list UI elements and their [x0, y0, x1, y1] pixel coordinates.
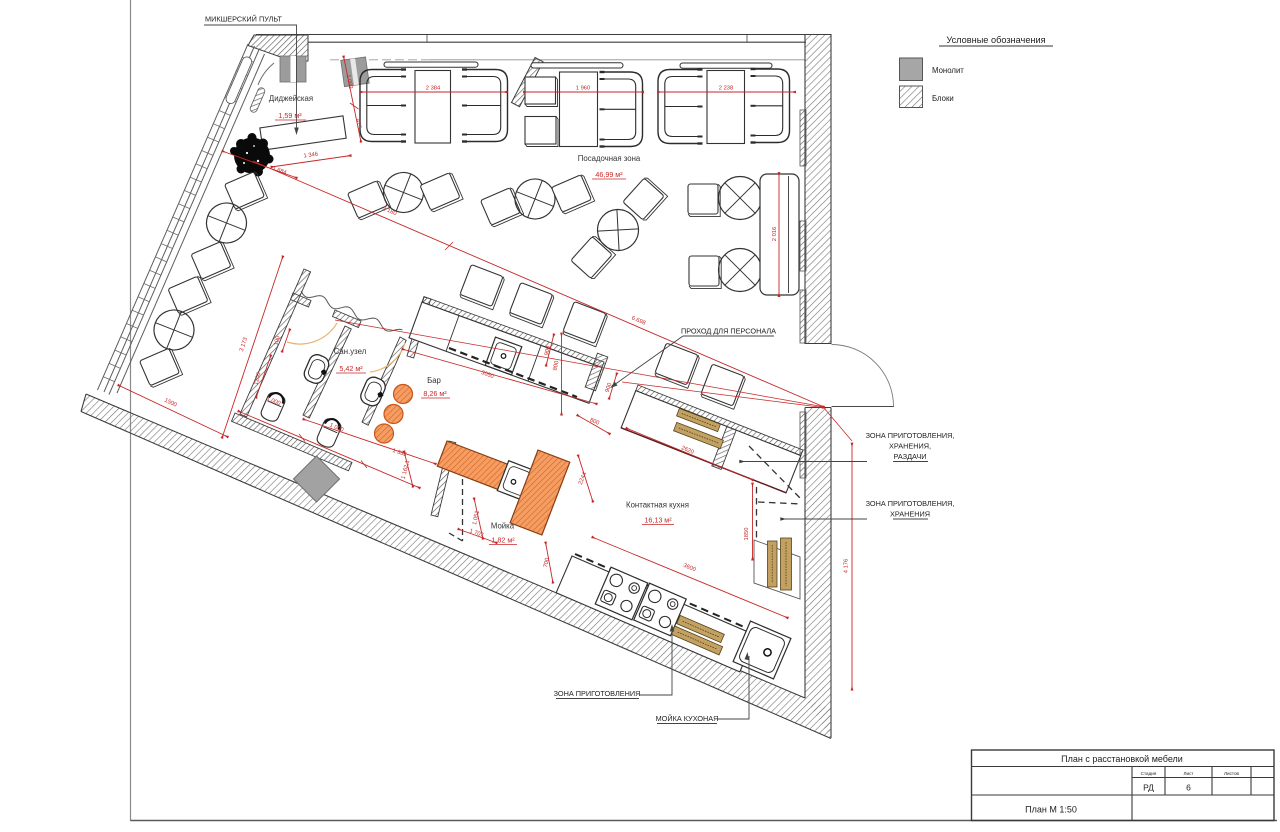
svg-text:Диджейская: Диджейская [269, 94, 313, 103]
svg-text:РАЗДАЧИ: РАЗДАЧИ [894, 452, 927, 461]
svg-text:ЗОНА ПРИГОТОВЛЕНИЯ,: ЗОНА ПРИГОТОВЛЕНИЯ, [866, 431, 955, 440]
svg-text:МИКШЕРСКИЙ ПУЛЬТ: МИКШЕРСКИЙ ПУЛЬТ [205, 15, 282, 24]
svg-text:Бар: Бар [427, 376, 441, 385]
svg-text:2 016: 2 016 [772, 227, 778, 242]
svg-text:Условные обозначения: Условные обозначения [946, 35, 1045, 45]
svg-text:Посадочная зона: Посадочная зона [578, 154, 641, 163]
svg-text:16,13 м²: 16,13 м² [644, 516, 672, 525]
svg-text:Монолит: Монолит [932, 66, 964, 75]
svg-text:Листов: Листов [1224, 771, 1239, 776]
svg-text:ЗОНА ПРИГОТОВЛЕНИЯ,: ЗОНА ПРИГОТОВЛЕНИЯ, [866, 499, 955, 508]
svg-text:Контактная кухня: Контактная кухня [626, 501, 689, 510]
svg-text:Блоки: Блоки [932, 94, 954, 103]
svg-text:ЗОНА ПРИГОТОВЛЕНИЯ: ЗОНА ПРИГОТОВЛЕНИЯ [554, 689, 641, 698]
svg-text:ХРАНЕНИЯ: ХРАНЕНИЯ [890, 510, 930, 519]
svg-text:6: 6 [1186, 783, 1191, 793]
svg-text:Стадия: Стадия [1141, 771, 1157, 776]
svg-text:1,59 м²: 1,59 м² [278, 111, 302, 120]
svg-text:Сан.узел: Сан.узел [334, 347, 367, 356]
svg-text:46,99 м²: 46,99 м² [595, 170, 623, 179]
svg-text:План М 1:50: План М 1:50 [1025, 805, 1077, 815]
svg-text:РД: РД [1143, 783, 1154, 793]
svg-text:5,42 м²: 5,42 м² [339, 364, 363, 373]
svg-text:1850: 1850 [744, 528, 750, 541]
svg-text:ПРОХОД ДЛЯ ПЕРСОНАЛА: ПРОХОД ДЛЯ ПЕРСОНАЛА [681, 327, 776, 336]
svg-text:1 960: 1 960 [576, 86, 591, 92]
svg-text:Лист: Лист [1184, 771, 1195, 776]
svg-text:План с расстановкой мебели: План с расстановкой мебели [1061, 754, 1183, 764]
svg-text:2 384: 2 384 [426, 86, 441, 92]
svg-text:2 238: 2 238 [719, 86, 734, 92]
svg-text:4 176: 4 176 [844, 559, 850, 574]
svg-text:1,82 м²: 1,82 м² [491, 536, 515, 545]
svg-text:Мойка: Мойка [491, 522, 515, 531]
svg-text:МОЙКА КУХОНАЯ: МОЙКА КУХОНАЯ [656, 714, 719, 723]
svg-text:ХРАНЕНИЯ,: ХРАНЕНИЯ, [889, 442, 931, 451]
svg-text:8,26 м²: 8,26 м² [423, 389, 447, 398]
